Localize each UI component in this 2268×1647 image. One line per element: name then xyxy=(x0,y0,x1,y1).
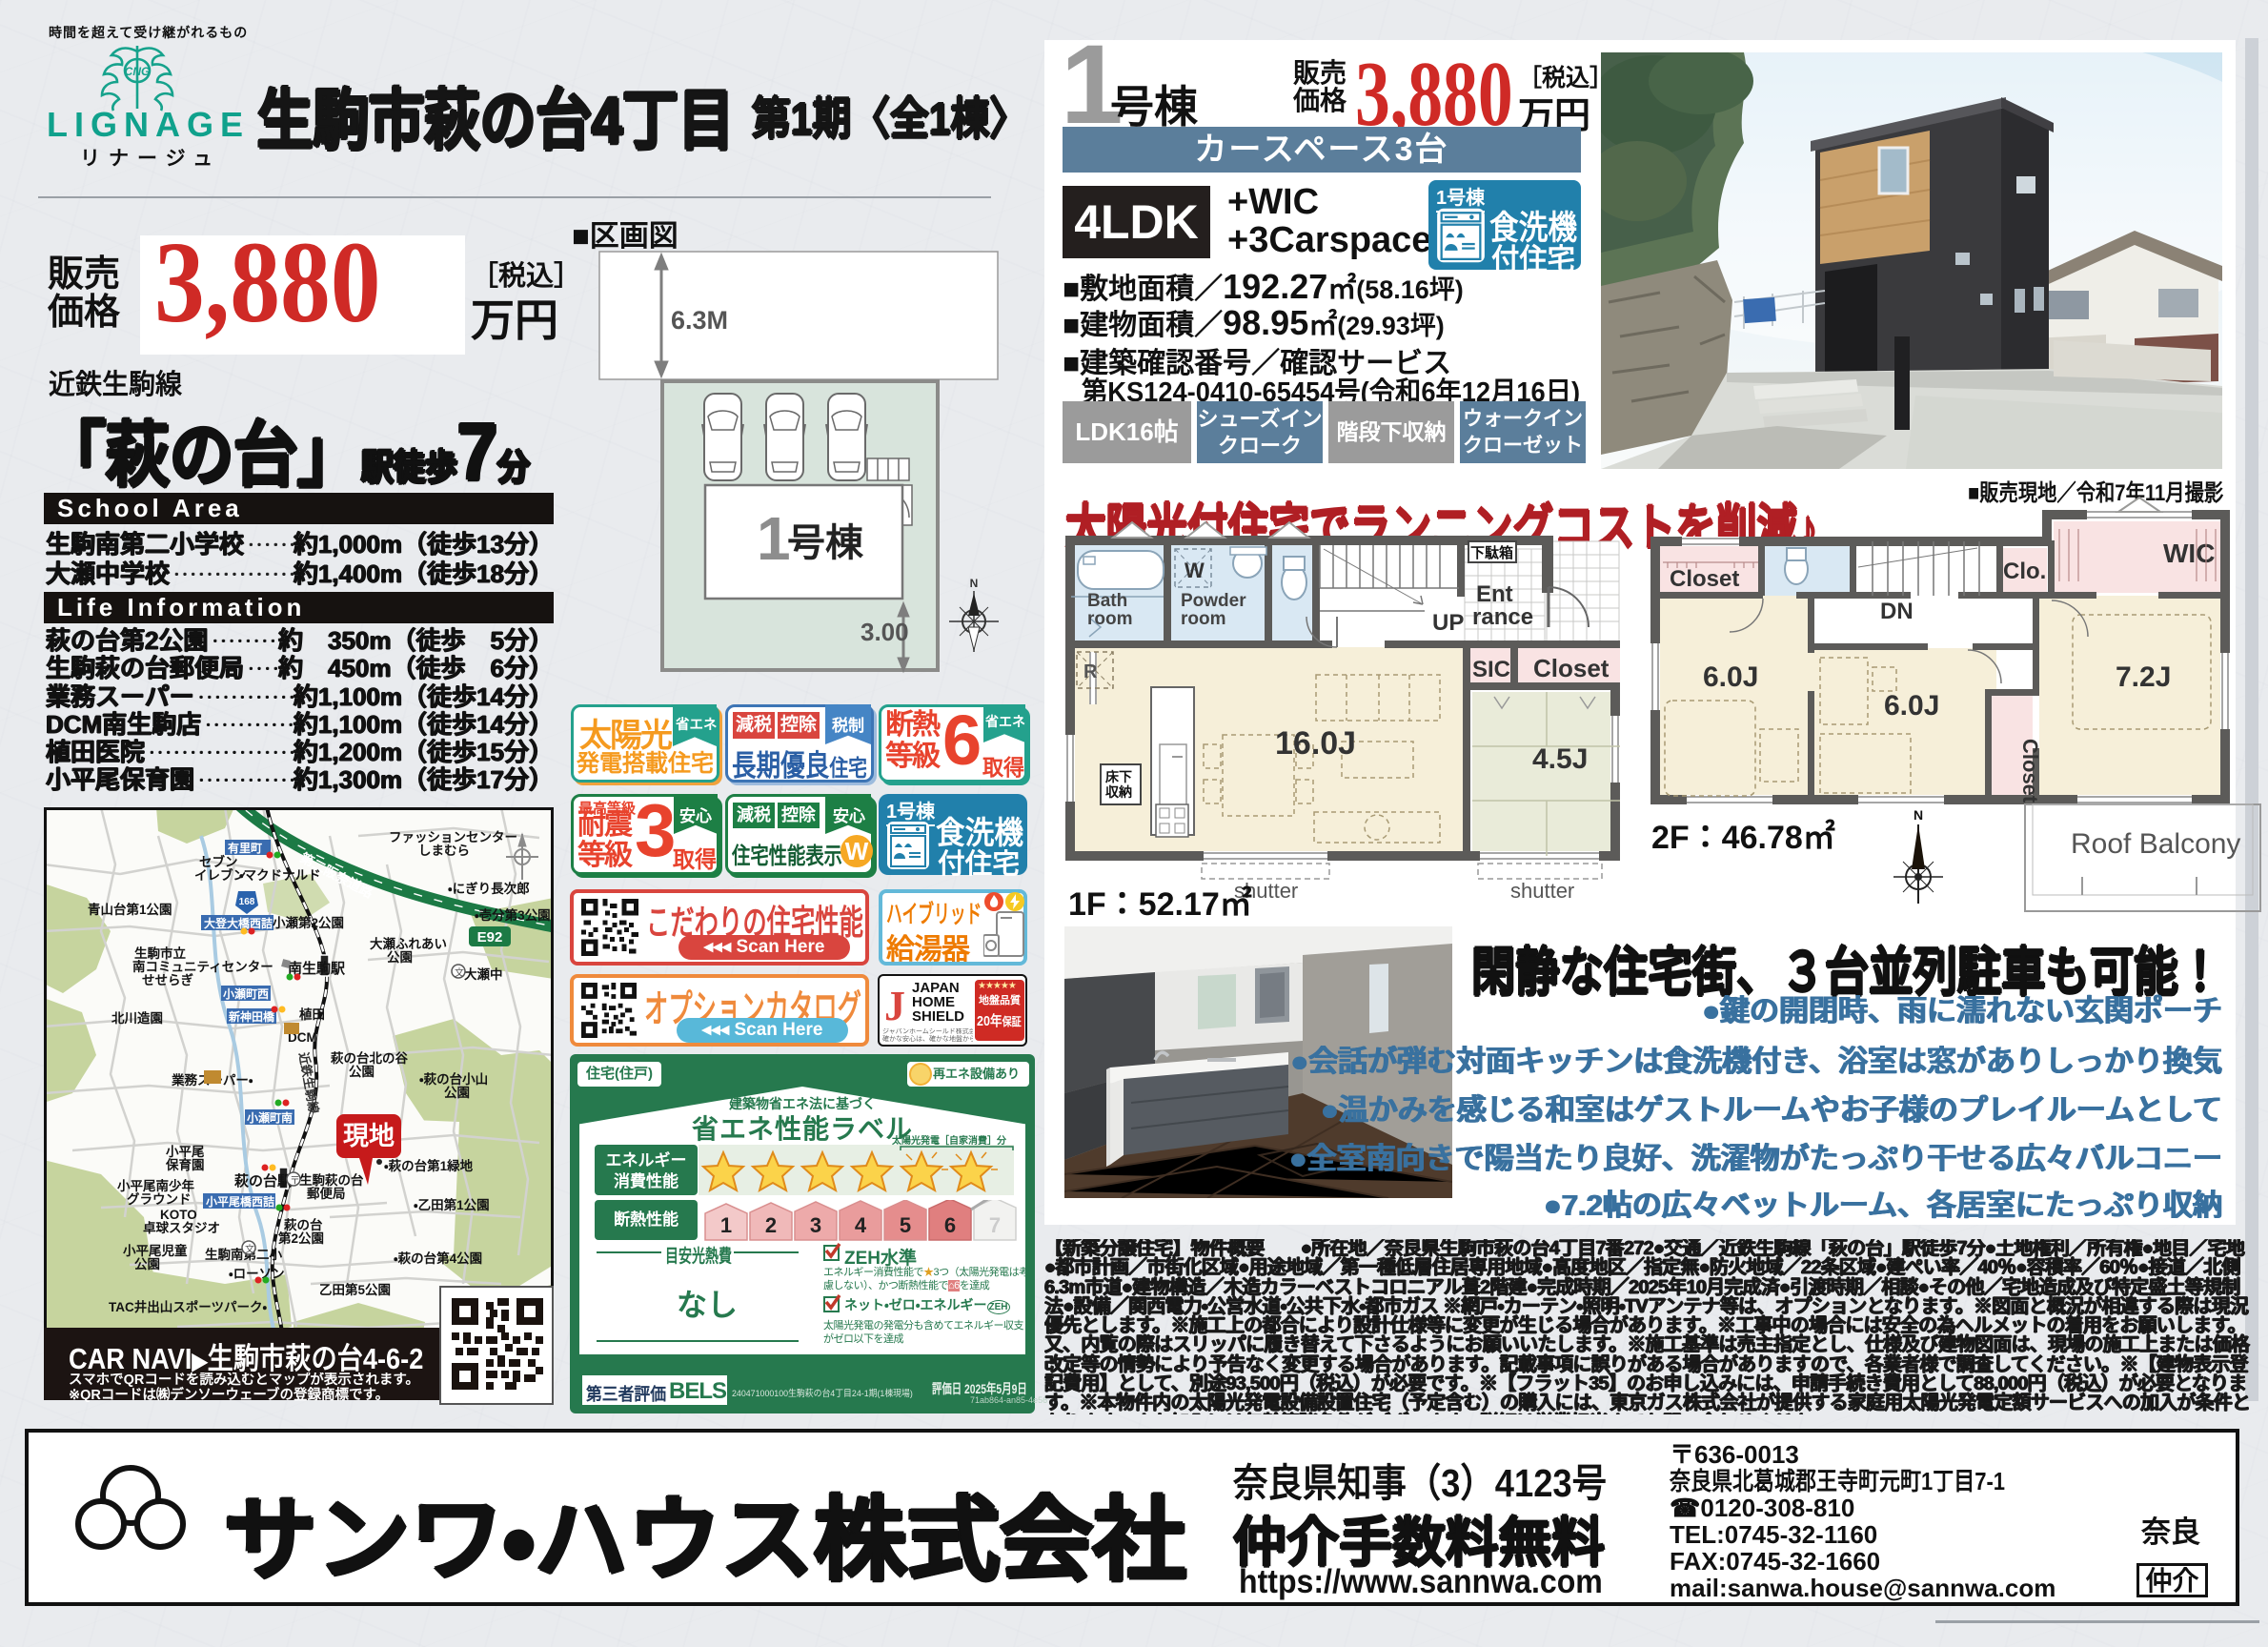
svg-text:6.3M: 6.3M xyxy=(671,306,728,335)
svg-text:3: 3 xyxy=(810,1213,821,1237)
svg-text:有里町: 有里町 xyxy=(228,841,262,855)
svg-text:新神田橋: 新神田橋 xyxy=(228,1009,275,1024)
svg-text:〒: 〒 xyxy=(290,1175,300,1187)
svg-text:・壱分第3公園: ・壱分第3公園 xyxy=(475,907,551,923)
svg-text:公園: 公園 xyxy=(349,1065,375,1079)
svg-text:4.5J: 4.5J xyxy=(1532,743,1588,775)
svg-text:6.0J: 6.0J xyxy=(1703,661,1758,693)
svg-text:1F：52.17㎡: 1F：52.17㎡ xyxy=(1068,885,1252,923)
svg-text:文: 文 xyxy=(245,1243,254,1255)
svg-text:1: 1 xyxy=(757,504,791,573)
svg-text:E92: E92 xyxy=(477,929,503,945)
svg-text:現地: 現地 xyxy=(343,1122,395,1150)
svg-text:公園: 公園 xyxy=(387,950,413,965)
svg-text:床下: 床下 xyxy=(1105,769,1132,784)
svg-text:収納: 収納 xyxy=(1105,784,1132,800)
svg-text:・にぎり長次郎: ・にぎり長次郎 xyxy=(448,881,530,896)
svg-text:公園: 公園 xyxy=(134,1257,160,1271)
svg-text:16.0J: 16.0J xyxy=(1275,725,1356,762)
svg-text:第2公園: 第2公園 xyxy=(278,1230,324,1246)
svg-text:北川造園: 北川造園 xyxy=(111,1010,163,1026)
svg-text:Roof Balcony: Roof Balcony xyxy=(2071,828,2240,860)
svg-text:生駒萩の台: 生駒萩の台 xyxy=(299,1172,364,1188)
svg-text:5: 5 xyxy=(900,1213,911,1237)
svg-text:CNG: CNG xyxy=(125,65,151,78)
svg-text:1: 1 xyxy=(720,1213,732,1237)
svg-text:萩の台: 萩の台 xyxy=(284,1217,323,1232)
svg-text:イレブン: イレブン xyxy=(194,867,246,883)
svg-text:shutter: shutter xyxy=(1510,879,1574,903)
svg-text:ファッションセンター: ファッションセンター xyxy=(389,830,517,844)
svg-text:Ent: Ent xyxy=(1476,581,1513,607)
svg-text:DN: DN xyxy=(1880,599,1914,624)
svg-text:小瀬町西: 小瀬町西 xyxy=(223,986,269,1001)
svg-text:公園: 公園 xyxy=(444,1086,470,1100)
svg-text:N: N xyxy=(1914,807,1923,823)
svg-text:萩の台北の谷: 萩の台北の谷 xyxy=(331,1050,408,1066)
svg-text:Closet: Closet xyxy=(1670,566,1739,592)
svg-text:room: room xyxy=(1181,609,1226,629)
svg-text:WIC: WIC xyxy=(2163,539,2215,568)
svg-text:植田: 植田 xyxy=(299,1006,325,1022)
svg-text:小瀬町南: 小瀬町南 xyxy=(247,1110,293,1125)
svg-text:小平尾橋西詰: 小平尾橋西詰 xyxy=(206,1194,274,1209)
svg-text:南コミュニティセンター: 南コミュニティセンター xyxy=(132,959,273,974)
svg-text:6.0J: 6.0J xyxy=(1884,690,1939,722)
svg-text:保育園: 保育園 xyxy=(165,1157,205,1172)
svg-text:6: 6 xyxy=(944,1213,956,1237)
svg-text:文: 文 xyxy=(455,966,464,979)
svg-text:SIC: SIC xyxy=(1472,657,1510,682)
svg-text:大登大橋西詰: 大登大橋西詰 xyxy=(204,916,273,930)
svg-text:セブン: セブン xyxy=(199,854,238,869)
svg-text:7: 7 xyxy=(989,1213,1001,1237)
svg-text:小平尾: 小平尾 xyxy=(166,1145,205,1159)
svg-text:・萩の台第4公園: ・萩の台第4公園 xyxy=(394,1250,482,1266)
svg-text:・萩の台小山: ・萩の台小山 xyxy=(419,1071,488,1087)
svg-text:Closet: Closet xyxy=(1533,654,1610,682)
svg-text:下駄箱: 下駄箱 xyxy=(1470,544,1513,561)
svg-text:大瀬中: 大瀬中 xyxy=(464,966,503,982)
svg-text:2F：46.78㎡: 2F：46.78㎡ xyxy=(1651,819,1835,856)
svg-text:小平尾南少年: 小平尾南少年 xyxy=(117,1178,194,1193)
svg-text:卓球スタジオ: 卓球スタジオ xyxy=(143,1220,220,1235)
svg-text:W: W xyxy=(1185,559,1205,582)
svg-text:グラウンド: グラウンド xyxy=(127,1191,192,1207)
svg-text:3.00: 3.00 xyxy=(861,618,909,646)
svg-text:乙田第5公園: 乙田第5公園 xyxy=(319,1282,391,1297)
svg-text:R: R xyxy=(1083,661,1098,682)
svg-text:郵便局: 郵便局 xyxy=(307,1186,346,1201)
svg-text:大瀬ふれあい: 大瀬ふれあい xyxy=(370,936,447,951)
svg-text:小瀬第2公園: 小瀬第2公園 xyxy=(273,915,344,930)
svg-text:・マクドナルド: ・マクドナルド xyxy=(239,868,321,883)
svg-text:・乙田第1公園: ・乙田第1公園 xyxy=(414,1197,490,1212)
svg-text:・萩の台第1緑地: ・萩の台第1緑地 xyxy=(384,1158,474,1173)
svg-text:Clo.: Clo. xyxy=(2003,559,2046,584)
svg-text:2: 2 xyxy=(765,1213,777,1237)
svg-text:号棟: 号棟 xyxy=(787,522,864,564)
svg-text:生駒市立: 生駒市立 xyxy=(134,945,186,961)
svg-text:4: 4 xyxy=(855,1213,867,1237)
svg-text:Powder: Powder xyxy=(1181,591,1246,611)
svg-text:7.2J: 7.2J xyxy=(2116,661,2171,693)
svg-text:TAC井出山スポーツパーク・: TAC井出山スポーツパーク・ xyxy=(109,1299,267,1314)
svg-text:KOTO: KOTO xyxy=(160,1208,197,1222)
svg-text:しまむら: しまむら xyxy=(418,844,470,858)
svg-text:せせらぎ: せせらぎ xyxy=(142,972,193,987)
svg-text:萩の台駅: 萩の台駅 xyxy=(234,1172,293,1189)
svg-text:Closet: Closet xyxy=(2018,739,2042,803)
svg-text:小平尾児童: 小平尾児童 xyxy=(123,1243,188,1258)
svg-text:UP: UP xyxy=(1432,610,1464,636)
svg-text:Bath: Bath xyxy=(1087,591,1127,611)
svg-text:rance: rance xyxy=(1472,604,1533,630)
svg-text:room: room xyxy=(1087,609,1133,629)
svg-text:168: 168 xyxy=(239,897,255,907)
svg-text:青山台第1公園: 青山台第1公園 xyxy=(88,902,172,917)
svg-text:N: N xyxy=(970,577,979,590)
